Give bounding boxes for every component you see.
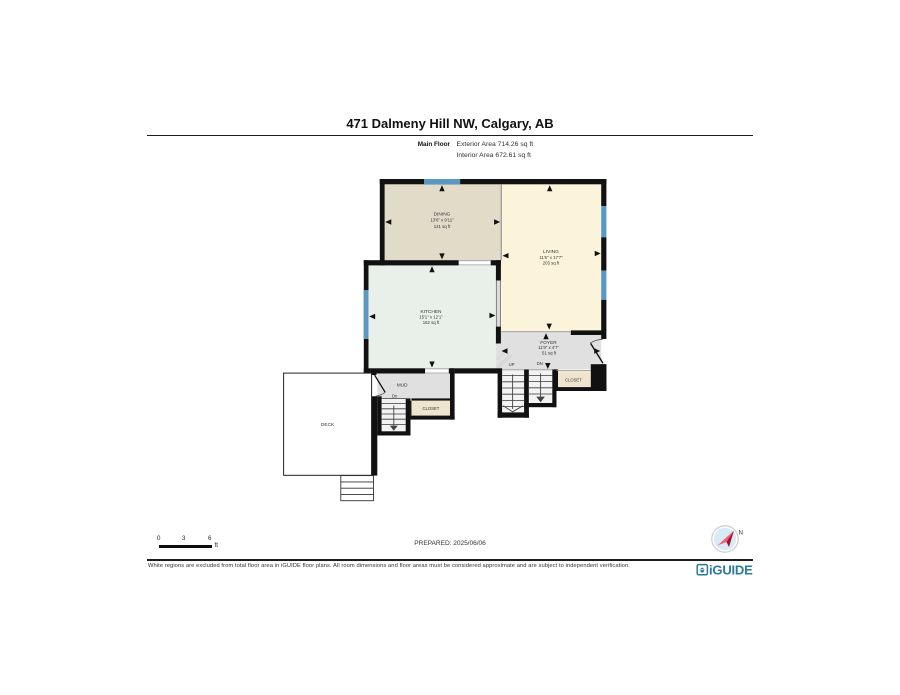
svg-text:UP: UP [509, 362, 515, 367]
svg-text:15'1" x 12'1": 15'1" x 12'1" [419, 315, 443, 320]
svg-text:CLOSET: CLOSET [565, 377, 582, 382]
svg-text:51 sq ft: 51 sq ft [542, 351, 557, 356]
svg-text:203 sq ft: 203 sq ft [543, 261, 560, 266]
svg-text:DN: DN [537, 361, 543, 366]
svg-text:11'6" x 17'7": 11'6" x 17'7" [539, 255, 563, 260]
svg-text:CLOSET: CLOSET [423, 406, 440, 411]
svg-text:13'6" x 9'11": 13'6" x 9'11" [430, 218, 454, 223]
svg-text:MUD: MUD [397, 382, 408, 388]
svg-text:N: N [739, 529, 743, 536]
svg-text:11'9" x 4'7": 11'9" x 4'7" [538, 345, 559, 350]
svg-text:Dn: Dn [392, 393, 398, 398]
svg-text:121 sq ft: 121 sq ft [434, 224, 451, 229]
svg-text:DECK: DECK [321, 422, 335, 428]
svg-text:iGUIDE: iGUIDE [709, 563, 753, 577]
svg-text:162 sq ft: 162 sq ft [423, 320, 440, 325]
svg-text:DINING: DINING [434, 211, 451, 217]
